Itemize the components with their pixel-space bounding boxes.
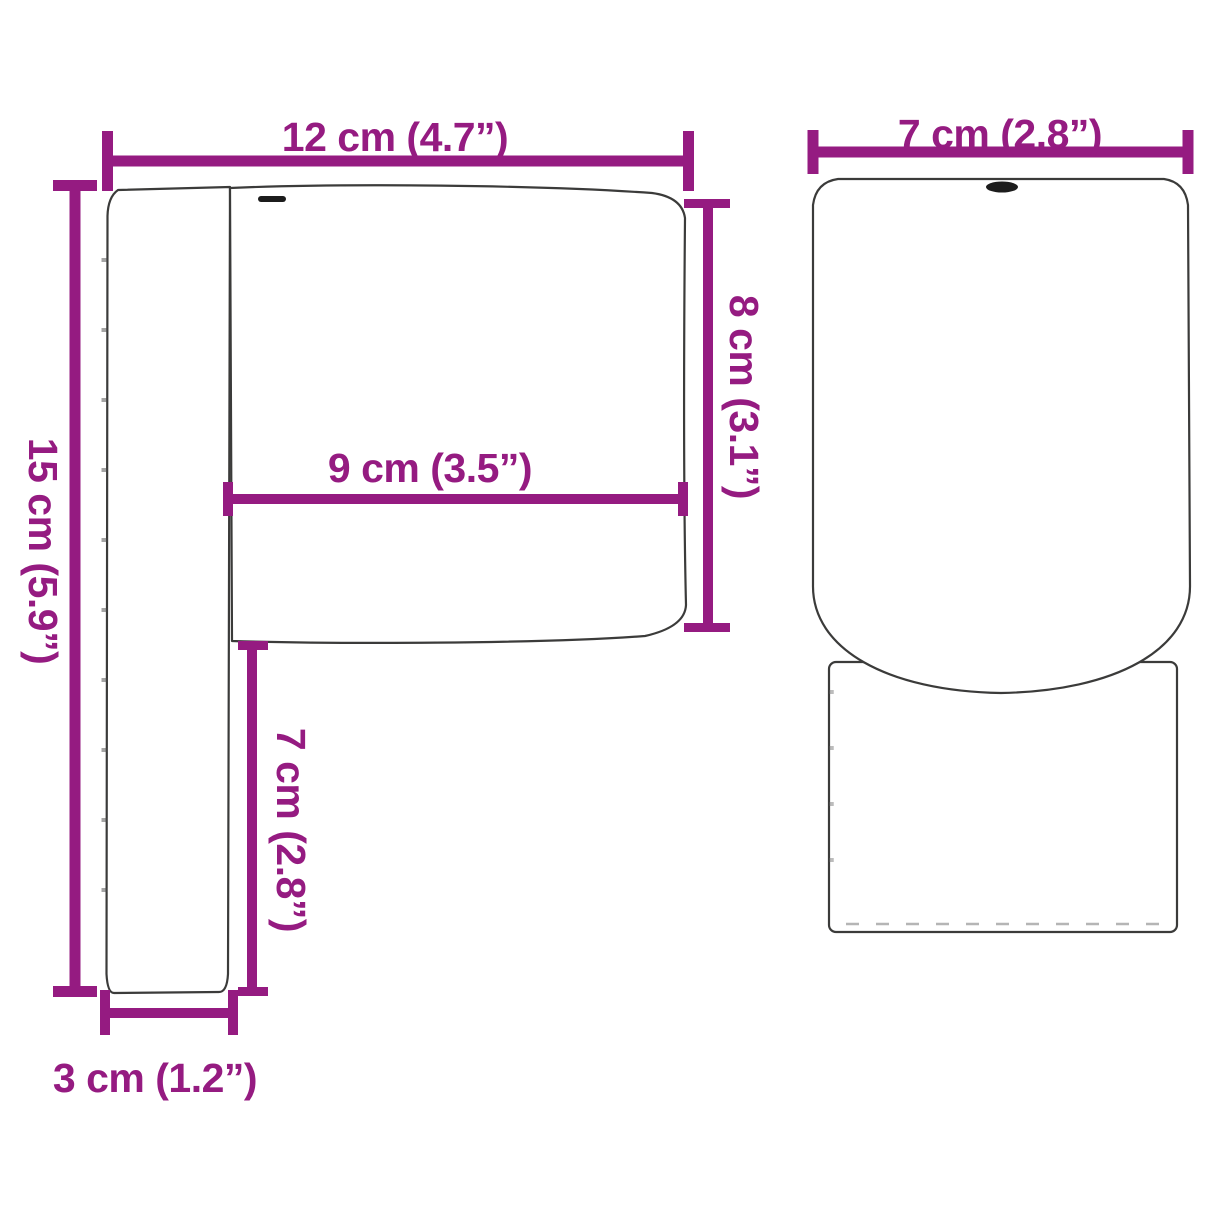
- dim-label-cushion-height: 8 cm (3.1”): [721, 295, 767, 499]
- dim-line: [70, 185, 81, 992]
- dim-line: [228, 494, 683, 504]
- dim-line: [105, 1008, 233, 1018]
- dim-label-base-depth: 3 cm (1.2”): [53, 1055, 257, 1101]
- front-view-cushion-outline: [813, 179, 1190, 693]
- dim-label-lower-height: 7 cm (2.8”): [268, 728, 314, 932]
- dim-line: [247, 645, 257, 992]
- dimension-total-height: 15 cm (5.9”): [20, 180, 97, 997]
- dim-line: [703, 202, 713, 630]
- dimension-diagram-canvas: 12 cm (4.7”) 15 cm (5.9”) 9 cm (3.5”): [0, 0, 1214, 1214]
- side-view-back-panel-outline: [107, 187, 231, 993]
- side-view-buttonhole-icon: [258, 196, 286, 202]
- front-view: [813, 179, 1190, 932]
- dimension-total-width: 12 cm (4.7”): [102, 114, 694, 191]
- dim-label-front-width: 7 cm (2.8”): [898, 111, 1102, 157]
- dimension-cushion-height: 8 cm (3.1”): [684, 199, 767, 632]
- dim-label-total-height: 15 cm (5.9”): [20, 438, 66, 664]
- side-view: [105, 185, 687, 993]
- dimension-lower-height: 7 cm (2.8”): [238, 641, 314, 996]
- dim-label-cushion-depth: 9 cm (3.5”): [328, 445, 532, 491]
- product-dimension-diagram: 12 cm (4.7”) 15 cm (5.9”) 9 cm (3.5”): [0, 0, 1214, 1214]
- dimension-front-width: 7 cm (2.8”): [808, 111, 1194, 174]
- front-view-leg-outline: [829, 662, 1177, 932]
- side-view-cushion-outline: [230, 185, 686, 643]
- dimension-base-depth: 3 cm (1.2”): [53, 990, 257, 1101]
- dim-label-total-width: 12 cm (4.7”): [282, 114, 508, 160]
- front-view-buttonhole-icon: [986, 182, 1018, 193]
